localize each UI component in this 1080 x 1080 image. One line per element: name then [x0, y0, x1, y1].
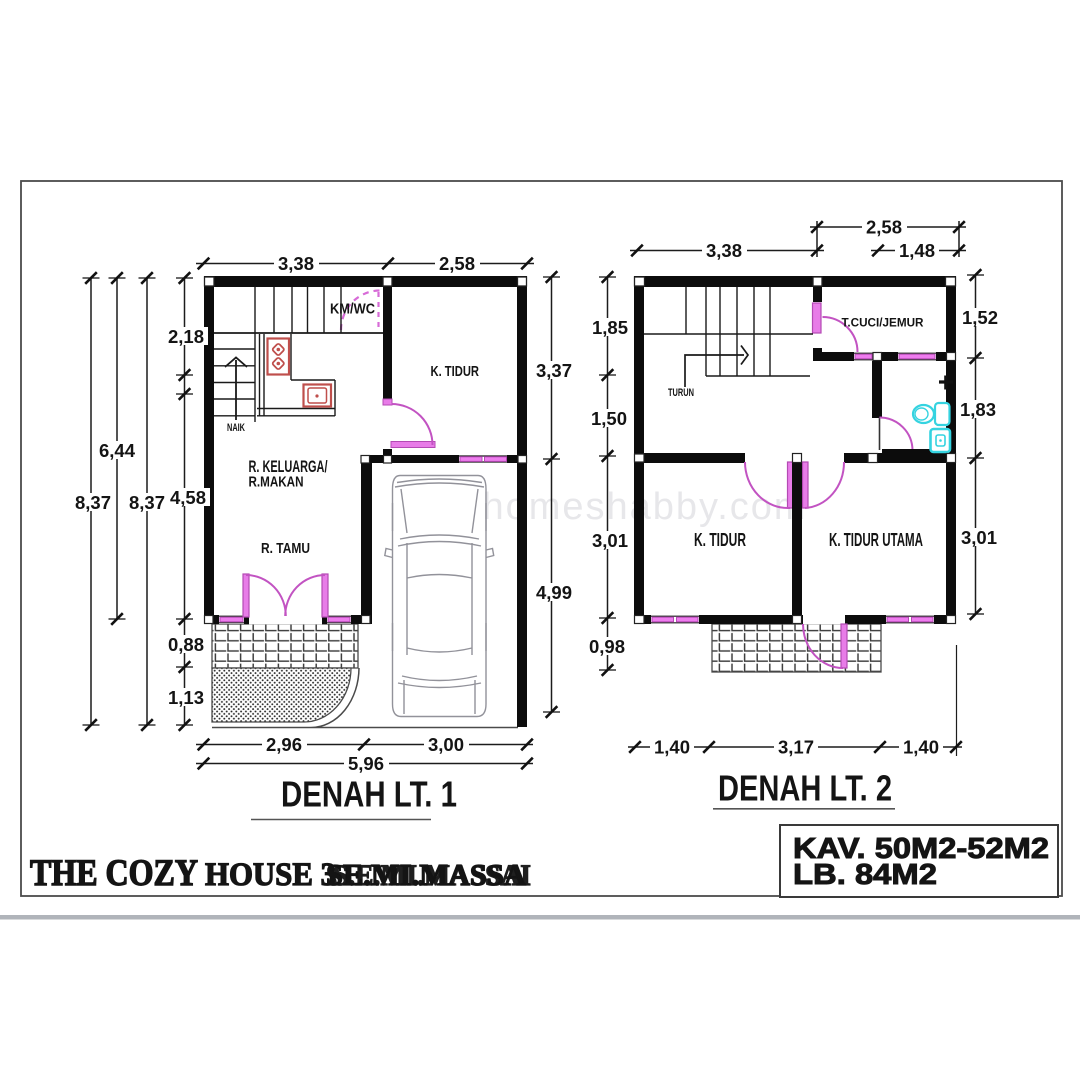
- svg-text:THE COZY: THE COZY: [30, 853, 198, 894]
- svg-text:1,40: 1,40: [903, 737, 939, 758]
- svg-text:HOUSE 3: HOUSE 3: [205, 857, 336, 893]
- svg-text:K. TIDUR: K. TIDUR: [694, 530, 746, 550]
- svg-text:3,38: 3,38: [706, 240, 742, 261]
- svg-text:R. TAMU: R. TAMU: [261, 540, 310, 557]
- svg-text:6,44: 6,44: [99, 440, 136, 461]
- svg-text:2,58: 2,58: [439, 253, 475, 274]
- svg-text:8,37: 8,37: [129, 492, 165, 513]
- svg-text:3,17: 3,17: [778, 737, 814, 758]
- svg-text:K. TIDUR: K. TIDUR: [431, 363, 480, 380]
- svg-text:3,38: 3,38: [278, 253, 314, 274]
- svg-text:2,96: 2,96: [266, 734, 302, 755]
- svg-text:NAIK: NAIK: [227, 422, 245, 434]
- svg-text:0,88: 0,88: [168, 634, 204, 655]
- svg-text:3,01: 3,01: [592, 530, 628, 551]
- svg-text:homeshabby.com: homeshabby.com: [482, 486, 807, 528]
- svg-text:T.CUCI/JEMUR: T.CUCI/JEMUR: [842, 316, 924, 330]
- svg-text:1,13: 1,13: [168, 687, 204, 708]
- svg-text:8,37: 8,37: [75, 492, 111, 513]
- svg-text:1,85: 1,85: [592, 317, 628, 338]
- svg-text:R.MAKAN: R.MAKAN: [249, 474, 304, 491]
- svg-text:1,52: 1,52: [962, 307, 998, 328]
- svg-text:DENAH LT. 1: DENAH LT. 1: [281, 774, 457, 815]
- svg-text:1,83: 1,83: [960, 399, 996, 420]
- svg-text:4,99: 4,99: [536, 582, 572, 603]
- svg-text:2,18: 2,18: [168, 326, 204, 347]
- svg-text:TURUN: TURUN: [668, 387, 694, 399]
- svg-text:5,96: 5,96: [348, 753, 384, 774]
- svg-text:KM/WC: KM/WC: [330, 302, 375, 318]
- svg-text:4,58: 4,58: [170, 487, 206, 508]
- svg-text:3,01: 3,01: [961, 527, 997, 548]
- svg-text:1,50: 1,50: [591, 408, 627, 429]
- svg-text:0,98: 0,98: [589, 636, 625, 657]
- svg-text:1,48: 1,48: [899, 240, 935, 261]
- svg-text:2,58: 2,58: [866, 217, 902, 238]
- svg-text:DENAH LT. 2: DENAH LT. 2: [718, 768, 892, 809]
- svg-text:LB. 84M2: LB. 84M2: [793, 859, 937, 891]
- svg-text:K. TIDUR UTAMA: K. TIDUR UTAMA: [829, 530, 923, 550]
- svg-text:3,00: 3,00: [428, 734, 464, 755]
- svg-text:3,37: 3,37: [536, 360, 572, 381]
- svg-text:S.E.MI.MASSAI: S.E.MI.MASSAI: [333, 859, 531, 892]
- svg-text:1,40: 1,40: [654, 737, 690, 758]
